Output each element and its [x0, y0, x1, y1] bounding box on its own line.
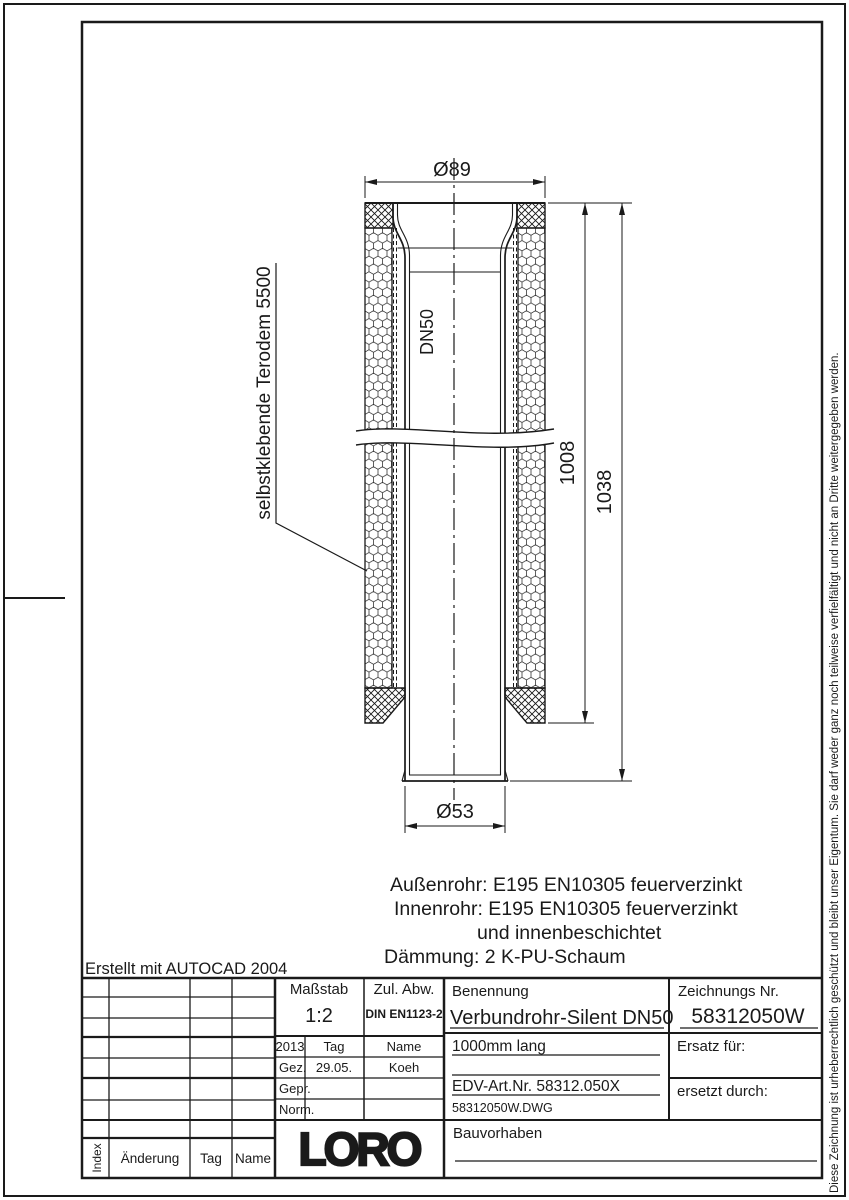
- dim-top-diameter: Ø89: [365, 159, 545, 198]
- svg-text:1038: 1038: [594, 470, 616, 515]
- insulation-right: [518, 228, 545, 688]
- name-header: Name: [387, 1039, 422, 1054]
- annotation-leader: selbstklebende Terodem 5500: [254, 263, 367, 571]
- drawn-date: 29.05.: [316, 1060, 352, 1075]
- insulation-liner: [394, 228, 517, 688]
- created-with-note: Erstellt mit AUTOCAD 2004: [85, 960, 287, 978]
- svg-text:Ø53: Ø53: [436, 801, 474, 823]
- insulation-left: [365, 228, 392, 688]
- index-header: Index: [90, 1143, 104, 1172]
- material-line: Dämmung: 2 K-PU-Schaum: [384, 946, 626, 968]
- svg-text:Ø89: Ø89: [433, 159, 471, 181]
- pipe-size-label: DN50: [417, 309, 437, 355]
- leader-label: selbstklebende Terodem 5500: [254, 266, 275, 519]
- replacement-for-label: Ersatz für:: [677, 1038, 745, 1055]
- project-label: Bauvorhaben: [453, 1125, 542, 1142]
- pipe-walls: [393, 203, 517, 781]
- tag-col-header: Tag: [200, 1151, 222, 1166]
- change-header: Änderung: [121, 1151, 180, 1166]
- dwg-file: 58312050W.DWG: [452, 1101, 553, 1115]
- dim-bottom-diameter: Ø53: [405, 786, 505, 833]
- insulation-end-cap-top: [365, 203, 545, 228]
- material-line: und innenbeschichtet: [477, 922, 662, 944]
- tag-header: Tag: [324, 1039, 345, 1054]
- copyright-note: Diese Zeichnung ist urheberrechtlich ges…: [829, 352, 841, 1193]
- name-label: Benennung: [452, 983, 529, 1000]
- drawing-canvas: DN50 Ø89 1008 1038: [0, 0, 849, 1200]
- material-line: Innenrohr: E195 EN10305 feuerverzinkt: [394, 898, 738, 920]
- scale-value: 1:2: [305, 1005, 333, 1027]
- insulation-end-cap-bottom: [365, 688, 545, 723]
- replaced-by-label: ersetzt durch:: [677, 1083, 768, 1100]
- norm-label: Norm.: [279, 1102, 314, 1117]
- year-cell: 2013: [276, 1039, 305, 1054]
- svg-text:1008: 1008: [557, 441, 579, 486]
- tolerance-label: Zul. Abw.: [374, 981, 435, 998]
- scale-label: Maßstab: [290, 981, 348, 998]
- drawing-sheet: DN50 Ø89 1008 1038: [0, 0, 849, 1200]
- loro-logo: LORO: [299, 1123, 421, 1175]
- drawing-no-value: 58312050W: [691, 1005, 804, 1028]
- edv-art-no: EDV-Art.Nr. 58312.050X: [452, 1078, 621, 1095]
- name-col-header: Name: [235, 1151, 271, 1166]
- name-value: Verbundrohr-Silent DN50: [450, 1007, 673, 1029]
- title-block: Maßstab 1:2 Zul. Abw. DIN EN1123-2 Benen…: [82, 978, 822, 1178]
- drawing-no-label: Zeichnungs Nr.: [678, 983, 779, 1000]
- material-line: Außenrohr: E195 EN10305 feuerverzinkt: [390, 874, 743, 896]
- dim-insulated-length: 1008: [548, 203, 594, 723]
- drawn-label: Gez.: [279, 1060, 306, 1075]
- length-note: 1000mm lang: [452, 1038, 546, 1055]
- material-note: Außenrohr: E195 EN10305 feuerverzinkt In…: [384, 874, 743, 968]
- checked-label: Gepr.: [279, 1081, 311, 1096]
- drawn-by: Koeh: [389, 1060, 419, 1075]
- tolerance-value: DIN EN1123-2: [365, 1007, 443, 1021]
- pipe-drawing: DN50: [356, 158, 554, 800]
